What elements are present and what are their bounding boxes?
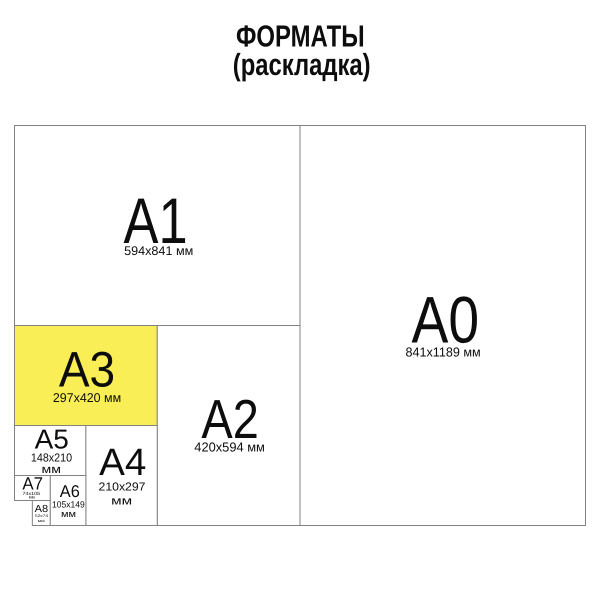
svg-text:мм: мм xyxy=(38,519,46,523)
svg-text:594x841 мм: 594x841 мм xyxy=(124,244,193,258)
svg-text:(раскладка): (раскладка) xyxy=(233,48,371,82)
svg-text:мм: мм xyxy=(29,494,35,499)
svg-text:мм: мм xyxy=(42,463,61,476)
svg-text:A4: A4 xyxy=(99,441,146,484)
svg-text:420x594 мм: 420x594 мм xyxy=(194,440,265,455)
svg-text:A6: A6 xyxy=(60,482,80,501)
svg-text:52x74: 52x74 xyxy=(35,514,48,518)
svg-text:А3: А3 xyxy=(59,342,115,398)
svg-text:297x420 мм: 297x420 мм xyxy=(53,391,121,405)
svg-text:105x149: 105x149 xyxy=(52,499,85,509)
svg-text:210x297: 210x297 xyxy=(99,481,146,494)
svg-text:A5: A5 xyxy=(35,424,69,455)
svg-text:841x1189 мм: 841x1189 мм xyxy=(405,345,480,360)
svg-text:мм: мм xyxy=(111,495,132,508)
svg-text:мм: мм xyxy=(61,509,76,520)
